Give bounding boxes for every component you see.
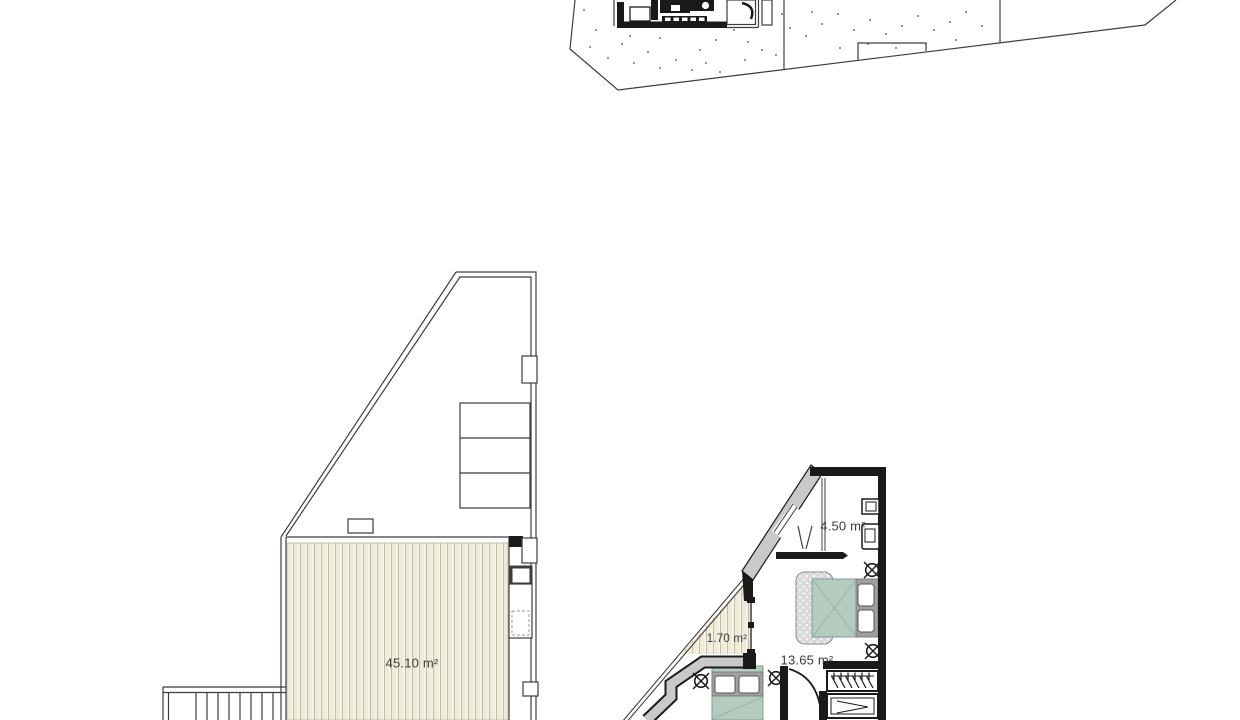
pillow [858,610,874,632]
double-bed-bedroom-2 [712,666,763,720]
exterior-stair [163,687,286,720]
rooflight-stack [460,403,530,508]
area-label-bathroom: 4.50 m² [820,519,865,534]
area-label-roof-terrace: 45.10 m² [386,656,439,671]
roof-terrace-plan [163,272,538,720]
pillow [858,584,874,606]
shower-symbol [798,526,812,549]
terrace-hatch [287,543,508,720]
door-swing [789,669,821,712]
wall-vent [522,356,537,383]
wardrobe-hangers [827,671,878,691]
site-annex-outline [762,0,772,25]
plot-boundary [570,0,1176,90]
spotlight-symbol [864,562,880,578]
pillow [739,676,759,693]
site-plan [570,0,1176,90]
roof-diagonal-wall-inner [286,277,460,536]
architectural-drawing-canvas: 45.10 m² 4.50 m² 1.70 m² 13.65 m² [0,0,1240,720]
terrace-edge-fixtures [509,538,538,696]
plot-notch [858,43,926,60]
wardrobe-mirror [827,694,878,718]
spotlight-symbol [768,670,784,686]
area-label-bedroom: 13.65 m² [781,653,834,668]
roof-chimney [348,519,373,533]
spotlight-symbol [865,643,881,659]
sink [862,499,879,514]
floor-plan-drawing [0,0,1240,720]
apartment-floor-plan [622,465,886,720]
pillow [715,676,735,693]
double-bed-bedroom-1 [812,579,878,637]
roof-diagonal-wall-outer [281,272,456,537]
spotlight-symbol [693,673,709,689]
site-furniture [630,7,650,21]
area-label-balcony: 1.70 m² [707,633,747,645]
site-toilet [742,3,752,19]
bathroom-wall [776,552,848,559]
site-building [614,0,772,28]
